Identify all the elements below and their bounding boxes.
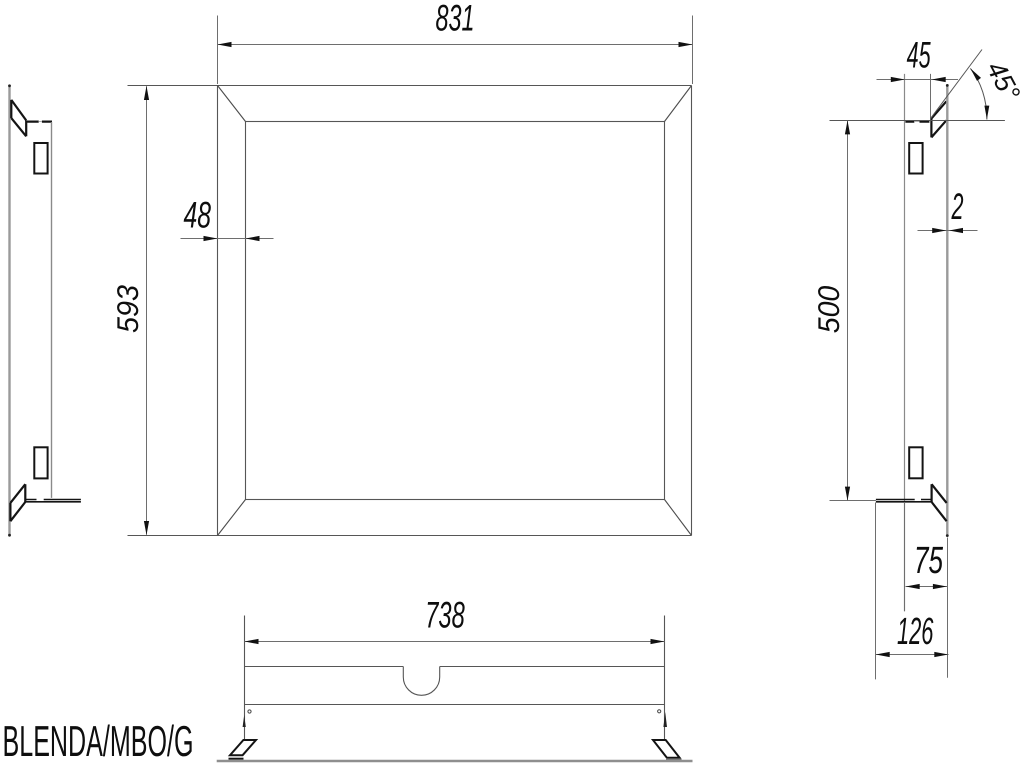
svg-text:75: 75 <box>914 540 944 582</box>
svg-text:BLENDA/MBO/G: BLENDA/MBO/G <box>3 718 194 766</box>
svg-text:500: 500 <box>813 285 846 333</box>
svg-text:593: 593 <box>112 285 145 333</box>
svg-text:831: 831 <box>436 0 475 39</box>
svg-text:2: 2 <box>951 186 964 227</box>
svg-text:45: 45 <box>907 35 931 76</box>
svg-text:738: 738 <box>425 595 465 636</box>
svg-text:48: 48 <box>183 195 211 236</box>
svg-text:126: 126 <box>897 611 934 653</box>
